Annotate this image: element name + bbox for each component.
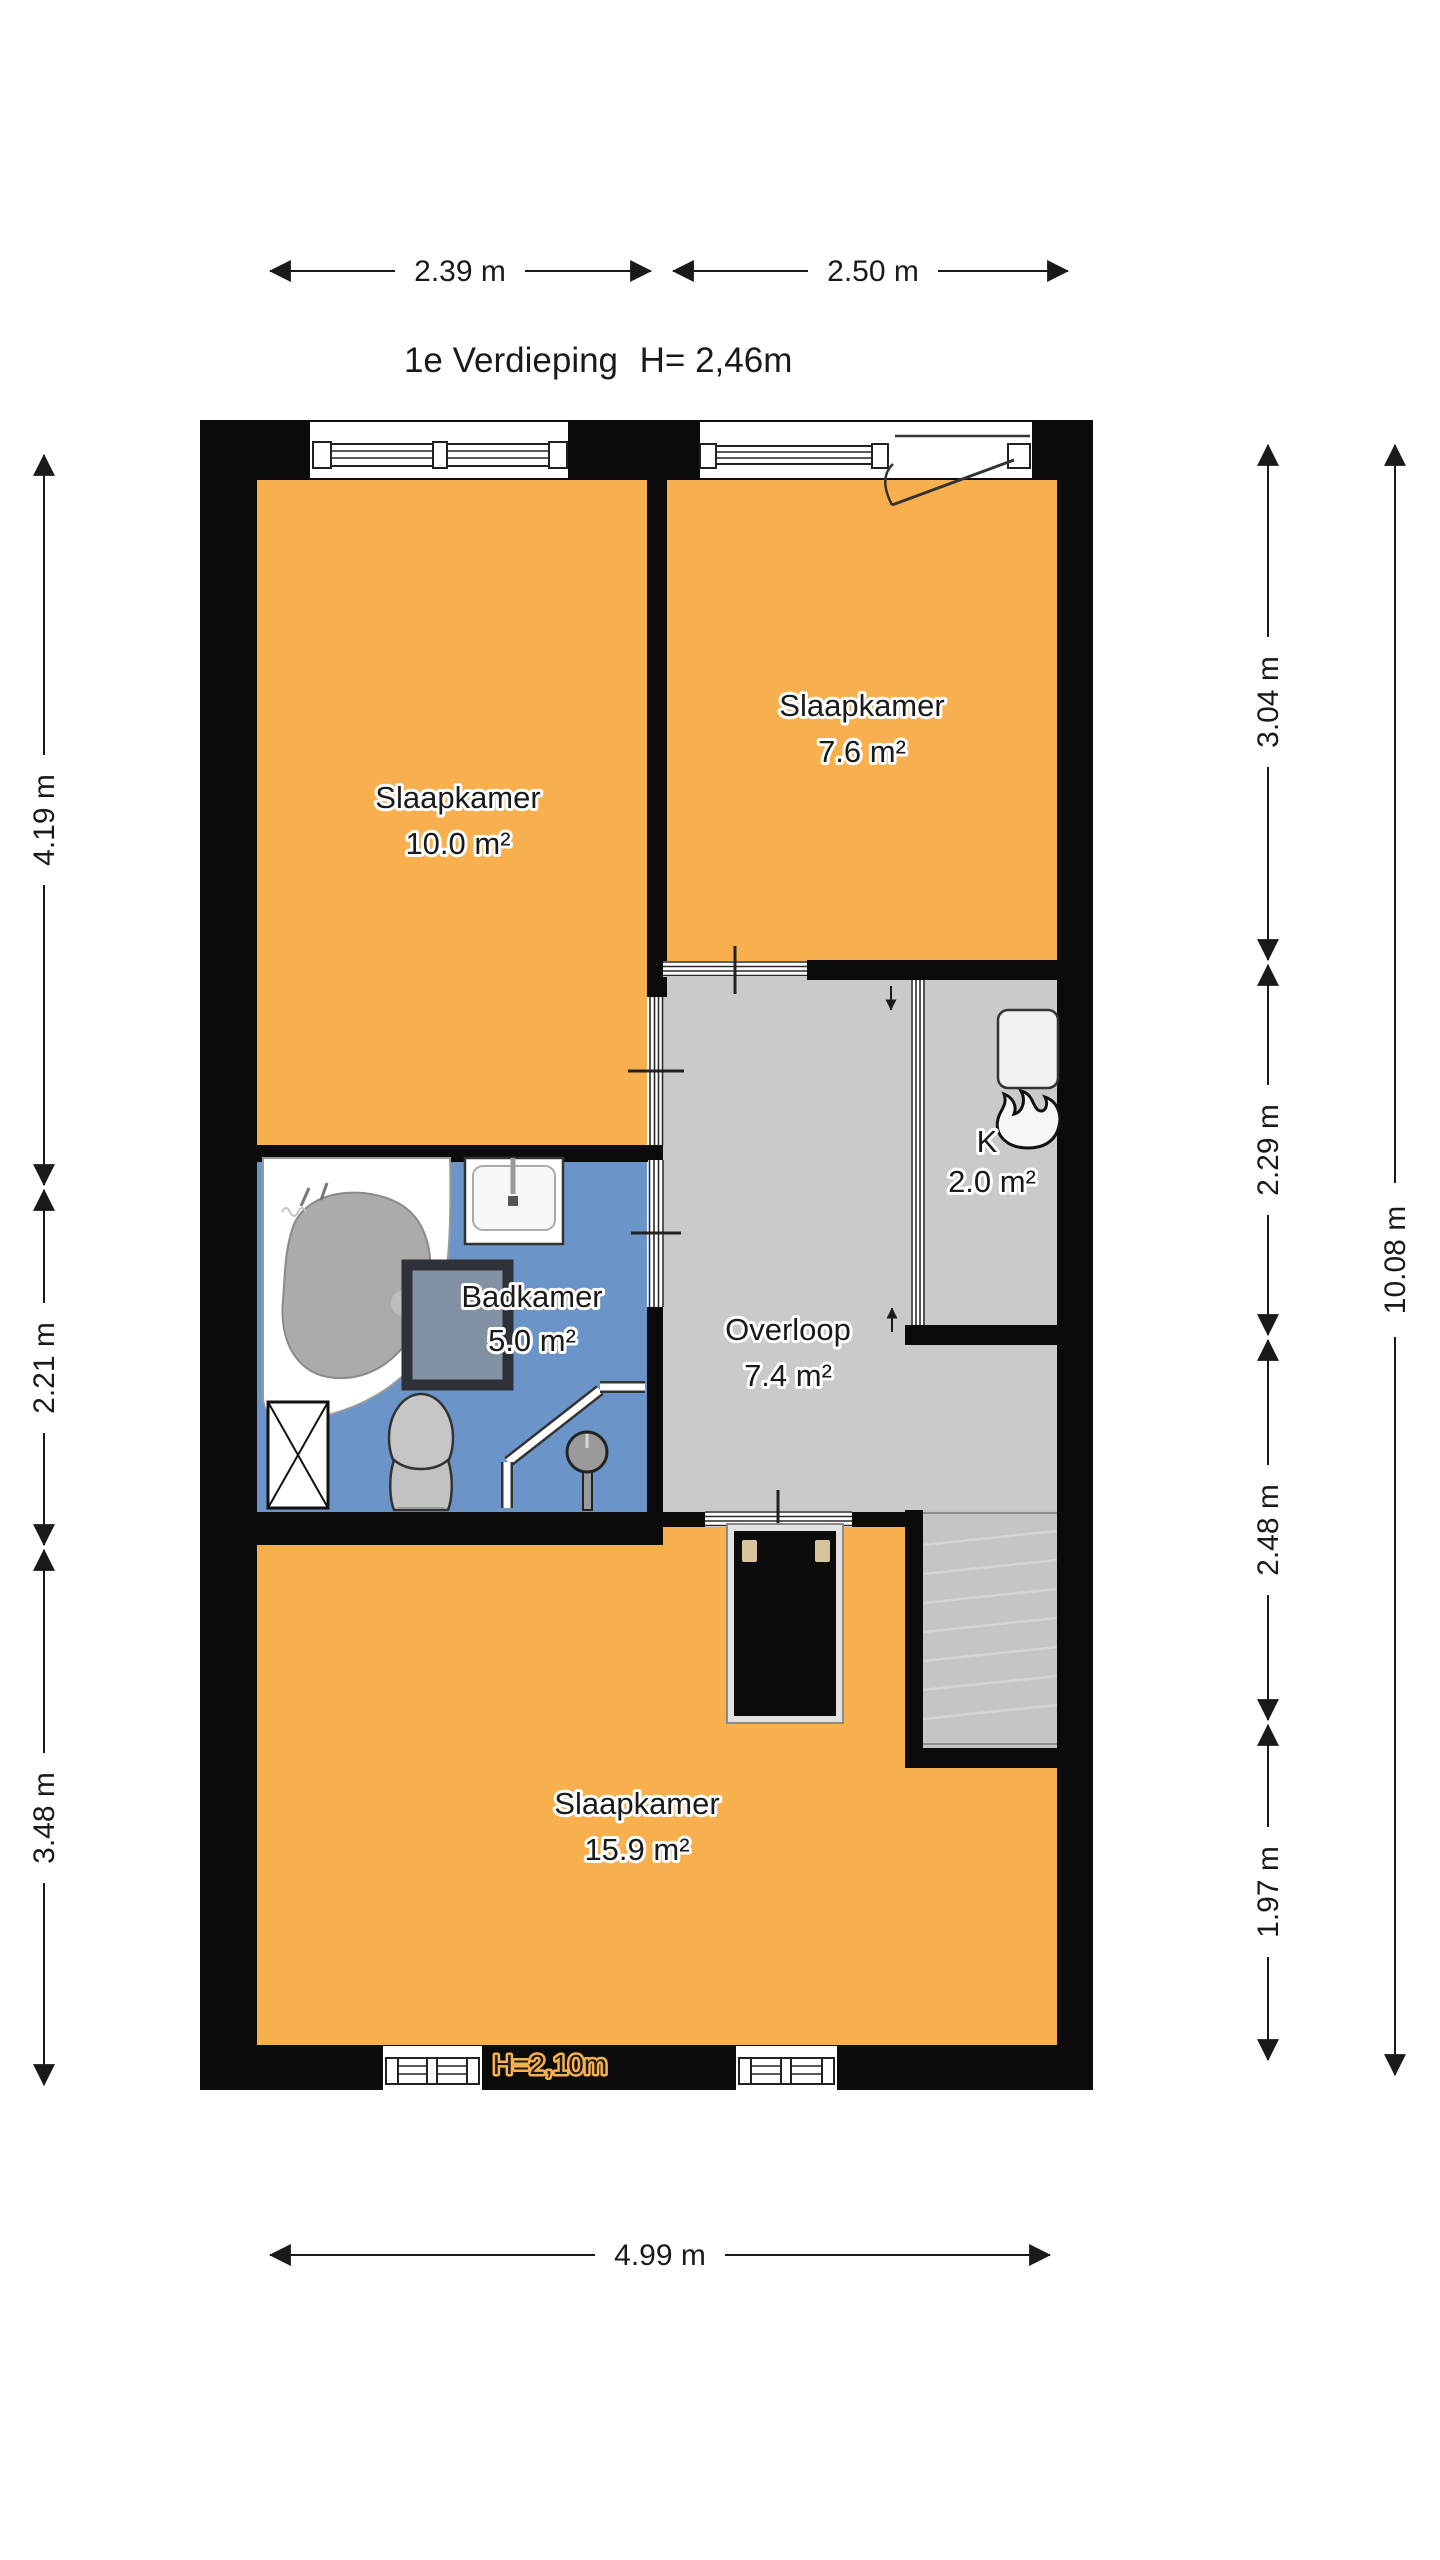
svg-text:7.4 m²: 7.4 m²	[744, 1358, 832, 1393]
wall-bottom	[200, 2045, 1093, 2090]
toilet	[389, 1394, 453, 1510]
svg-text:2.48 m: 2.48 m	[1252, 1484, 1285, 1576]
ceiling-height-note: H=2,10m	[493, 2049, 607, 2080]
wall-right	[1057, 420, 1093, 2090]
sink-drain-icon	[508, 1196, 518, 1206]
wall-stairs-left	[905, 1510, 923, 1768]
svg-text:Slaapkamer: Slaapkamer	[375, 780, 540, 815]
floor-plan-page: 1e Verdieping H= 2,46m Slaapkamer 10.0 m…	[0, 0, 1440, 2560]
wall-bathroom-bottom	[200, 1512, 663, 1545]
bedroom-large-floor-understairs	[918, 1768, 1057, 2045]
window-bottom-right	[736, 2046, 837, 2090]
staircase	[923, 1510, 1057, 1748]
svg-text:10.08 m: 10.08 m	[1379, 1206, 1412, 1314]
svg-text:5.0 m²: 5.0 m²	[488, 1323, 576, 1358]
pillow	[815, 1540, 830, 1562]
wall-bathroom-right	[647, 1307, 663, 1512]
svg-text:Badkamer: Badkamer	[461, 1279, 602, 1314]
dimension-top-1: 2.39 m	[270, 252, 651, 290]
svg-text:3.48 m: 3.48 m	[28, 1772, 61, 1864]
wall-bedroom-divider	[647, 480, 667, 997]
svg-text:3.04 m: 3.04 m	[1252, 656, 1285, 748]
svg-text:7.6 m²: 7.6 m²	[818, 734, 906, 769]
svg-text:2.21 m: 2.21 m	[28, 1322, 61, 1414]
pillow	[742, 1540, 757, 1562]
dimension-left-1: 4.19 m	[25, 455, 63, 1185]
svg-text:K: K	[977, 1124, 998, 1159]
svg-text:Slaapkamer: Slaapkamer	[554, 1786, 719, 1821]
dimension-right-1: 3.04 m	[1249, 445, 1287, 960]
dimension-bottom: 4.99 m	[270, 2236, 1050, 2274]
washing-machine	[268, 1402, 328, 1508]
wall-stub-right-of-door	[852, 1512, 918, 1527]
svg-text:4.99 m: 4.99 m	[614, 2239, 706, 2272]
svg-text:1.97 m: 1.97 m	[1252, 1846, 1285, 1938]
boiler	[998, 1010, 1058, 1088]
svg-text:10.0 m²: 10.0 m²	[405, 826, 510, 861]
dimension-top-2: 2.50 m	[673, 252, 1068, 290]
dimension-right-4: 1.97 m	[1249, 1725, 1287, 2060]
window-bottom-left	[383, 2046, 482, 2090]
wall-closet-bottom	[905, 1325, 1057, 1345]
bed	[727, 1524, 843, 1723]
svg-text:Overloop: Overloop	[725, 1312, 851, 1347]
dimension-left-3: 3.48 m	[25, 1550, 63, 2085]
svg-text:2.39 m: 2.39 m	[414, 255, 506, 288]
dimension-left-2: 2.21 m	[25, 1190, 63, 1545]
dimension-right-2: 2.29 m	[1249, 965, 1287, 1335]
wall-stairs-bottom	[905, 1748, 1057, 1768]
floor-title: 1e Verdieping	[404, 341, 618, 380]
wall-left	[200, 420, 257, 2090]
dimension-right-total: 10.08 m	[1376, 445, 1414, 2075]
svg-text:15.9 m²: 15.9 m²	[584, 1832, 689, 1867]
door-hinge	[1008, 444, 1030, 468]
partition-closet-west	[911, 980, 925, 1325]
window-top-left	[310, 422, 568, 478]
svg-text:2.29 m: 2.29 m	[1252, 1104, 1285, 1196]
svg-text:2.50 m: 2.50 m	[827, 255, 919, 288]
dimension-right-3: 2.48 m	[1249, 1340, 1287, 1720]
floor-plan-drawing: 1e Verdieping H= 2,46m Slaapkamer 10.0 m…	[0, 0, 1440, 2560]
svg-text:Slaapkamer: Slaapkamer	[779, 688, 944, 723]
svg-text:2.0 m²: 2.0 m²	[948, 1164, 1036, 1199]
wall-landing-top-right	[807, 960, 1057, 980]
flame-icon	[997, 1091, 1060, 1148]
floor-ceiling-height: H= 2,46m	[640, 341, 793, 380]
sink	[465, 1158, 563, 1244]
svg-text:4.19 m: 4.19 m	[28, 774, 61, 866]
wall-stub-left-of-door	[663, 1512, 705, 1527]
